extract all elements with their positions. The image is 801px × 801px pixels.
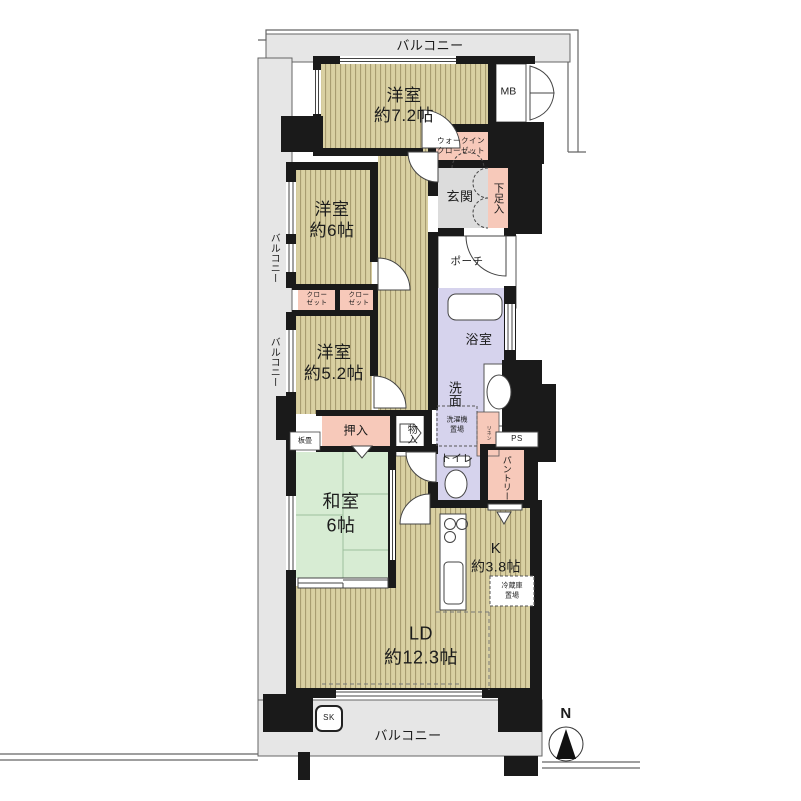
label-vanity: 洗面 bbox=[447, 381, 461, 407]
label-wic-line2: クローゼット bbox=[437, 147, 485, 155]
label-closet2-line2: ゼット bbox=[349, 301, 370, 308]
label-balcony-top: バルコニー bbox=[396, 39, 463, 53]
label-balcony-left-2: バルコニー bbox=[268, 337, 279, 387]
label-laundry-line2: 置場 bbox=[450, 426, 464, 433]
compass-icon bbox=[549, 727, 583, 761]
label-porch: ポーチ bbox=[451, 256, 484, 267]
floorplan-page: バルコニー バルコニー バルコニー バルコニー 洋室 約7.2帖 洋室 約6帖 … bbox=[0, 0, 801, 801]
label-laundry-line1: 洗濯機 bbox=[447, 416, 468, 423]
label-pantry: パントリー bbox=[501, 456, 510, 501]
label-toilet: トイレ bbox=[441, 453, 474, 464]
room-label-ld-size: 約12.3帖 bbox=[384, 649, 458, 668]
room-label-western-5-2-size: 約5.2帖 bbox=[304, 365, 364, 383]
label-itatami: 板畳 bbox=[298, 437, 312, 444]
room-label-washitsu: 和室 bbox=[323, 493, 360, 512]
label-fridge-line1: 冷蔵庫 bbox=[502, 582, 523, 589]
label-meter-box: MB bbox=[501, 87, 514, 98]
label-balcony-bottom: バルコニー bbox=[374, 729, 441, 743]
room-label-western-7-2-size: 約7.2帖 bbox=[374, 107, 434, 125]
label-slop-sink: SK bbox=[323, 714, 335, 722]
room-label-kitchen-size: 約3.8帖 bbox=[471, 560, 521, 575]
label-genkan: 玄関 bbox=[446, 190, 473, 204]
room-label-ld: LD bbox=[409, 625, 433, 644]
room-label-washitsu-size: 6帖 bbox=[326, 517, 355, 536]
label-fridge-line2: 置場 bbox=[505, 592, 519, 599]
label-linen: リネン bbox=[485, 426, 490, 441]
label-closet2-line1: クロー bbox=[349, 293, 370, 300]
label-monoire: 物入 bbox=[405, 424, 416, 444]
label-compass-north: N bbox=[560, 706, 571, 722]
label-closet1-line2: ゼット bbox=[307, 301, 328, 308]
label-balcony-left-1: バルコニー bbox=[268, 233, 279, 283]
label-wic-line1: ウォークイン bbox=[437, 137, 485, 145]
label-pipe-space: PS bbox=[511, 435, 523, 443]
room-label-western-7-2: 洋室 bbox=[387, 87, 422, 105]
label-bath: 浴室 bbox=[465, 333, 492, 347]
room-label-kitchen: K bbox=[491, 541, 502, 557]
room-label-western-6: 洋室 bbox=[315, 201, 350, 219]
room-label-western-5-2: 洋室 bbox=[317, 344, 352, 362]
room-label-western-6-size: 約6帖 bbox=[310, 222, 355, 240]
label-closet1-line1: クロー bbox=[307, 293, 328, 300]
label-oshiire: 押入 bbox=[343, 425, 368, 438]
label-shoe-cabinet: 下足入 bbox=[492, 182, 503, 214]
